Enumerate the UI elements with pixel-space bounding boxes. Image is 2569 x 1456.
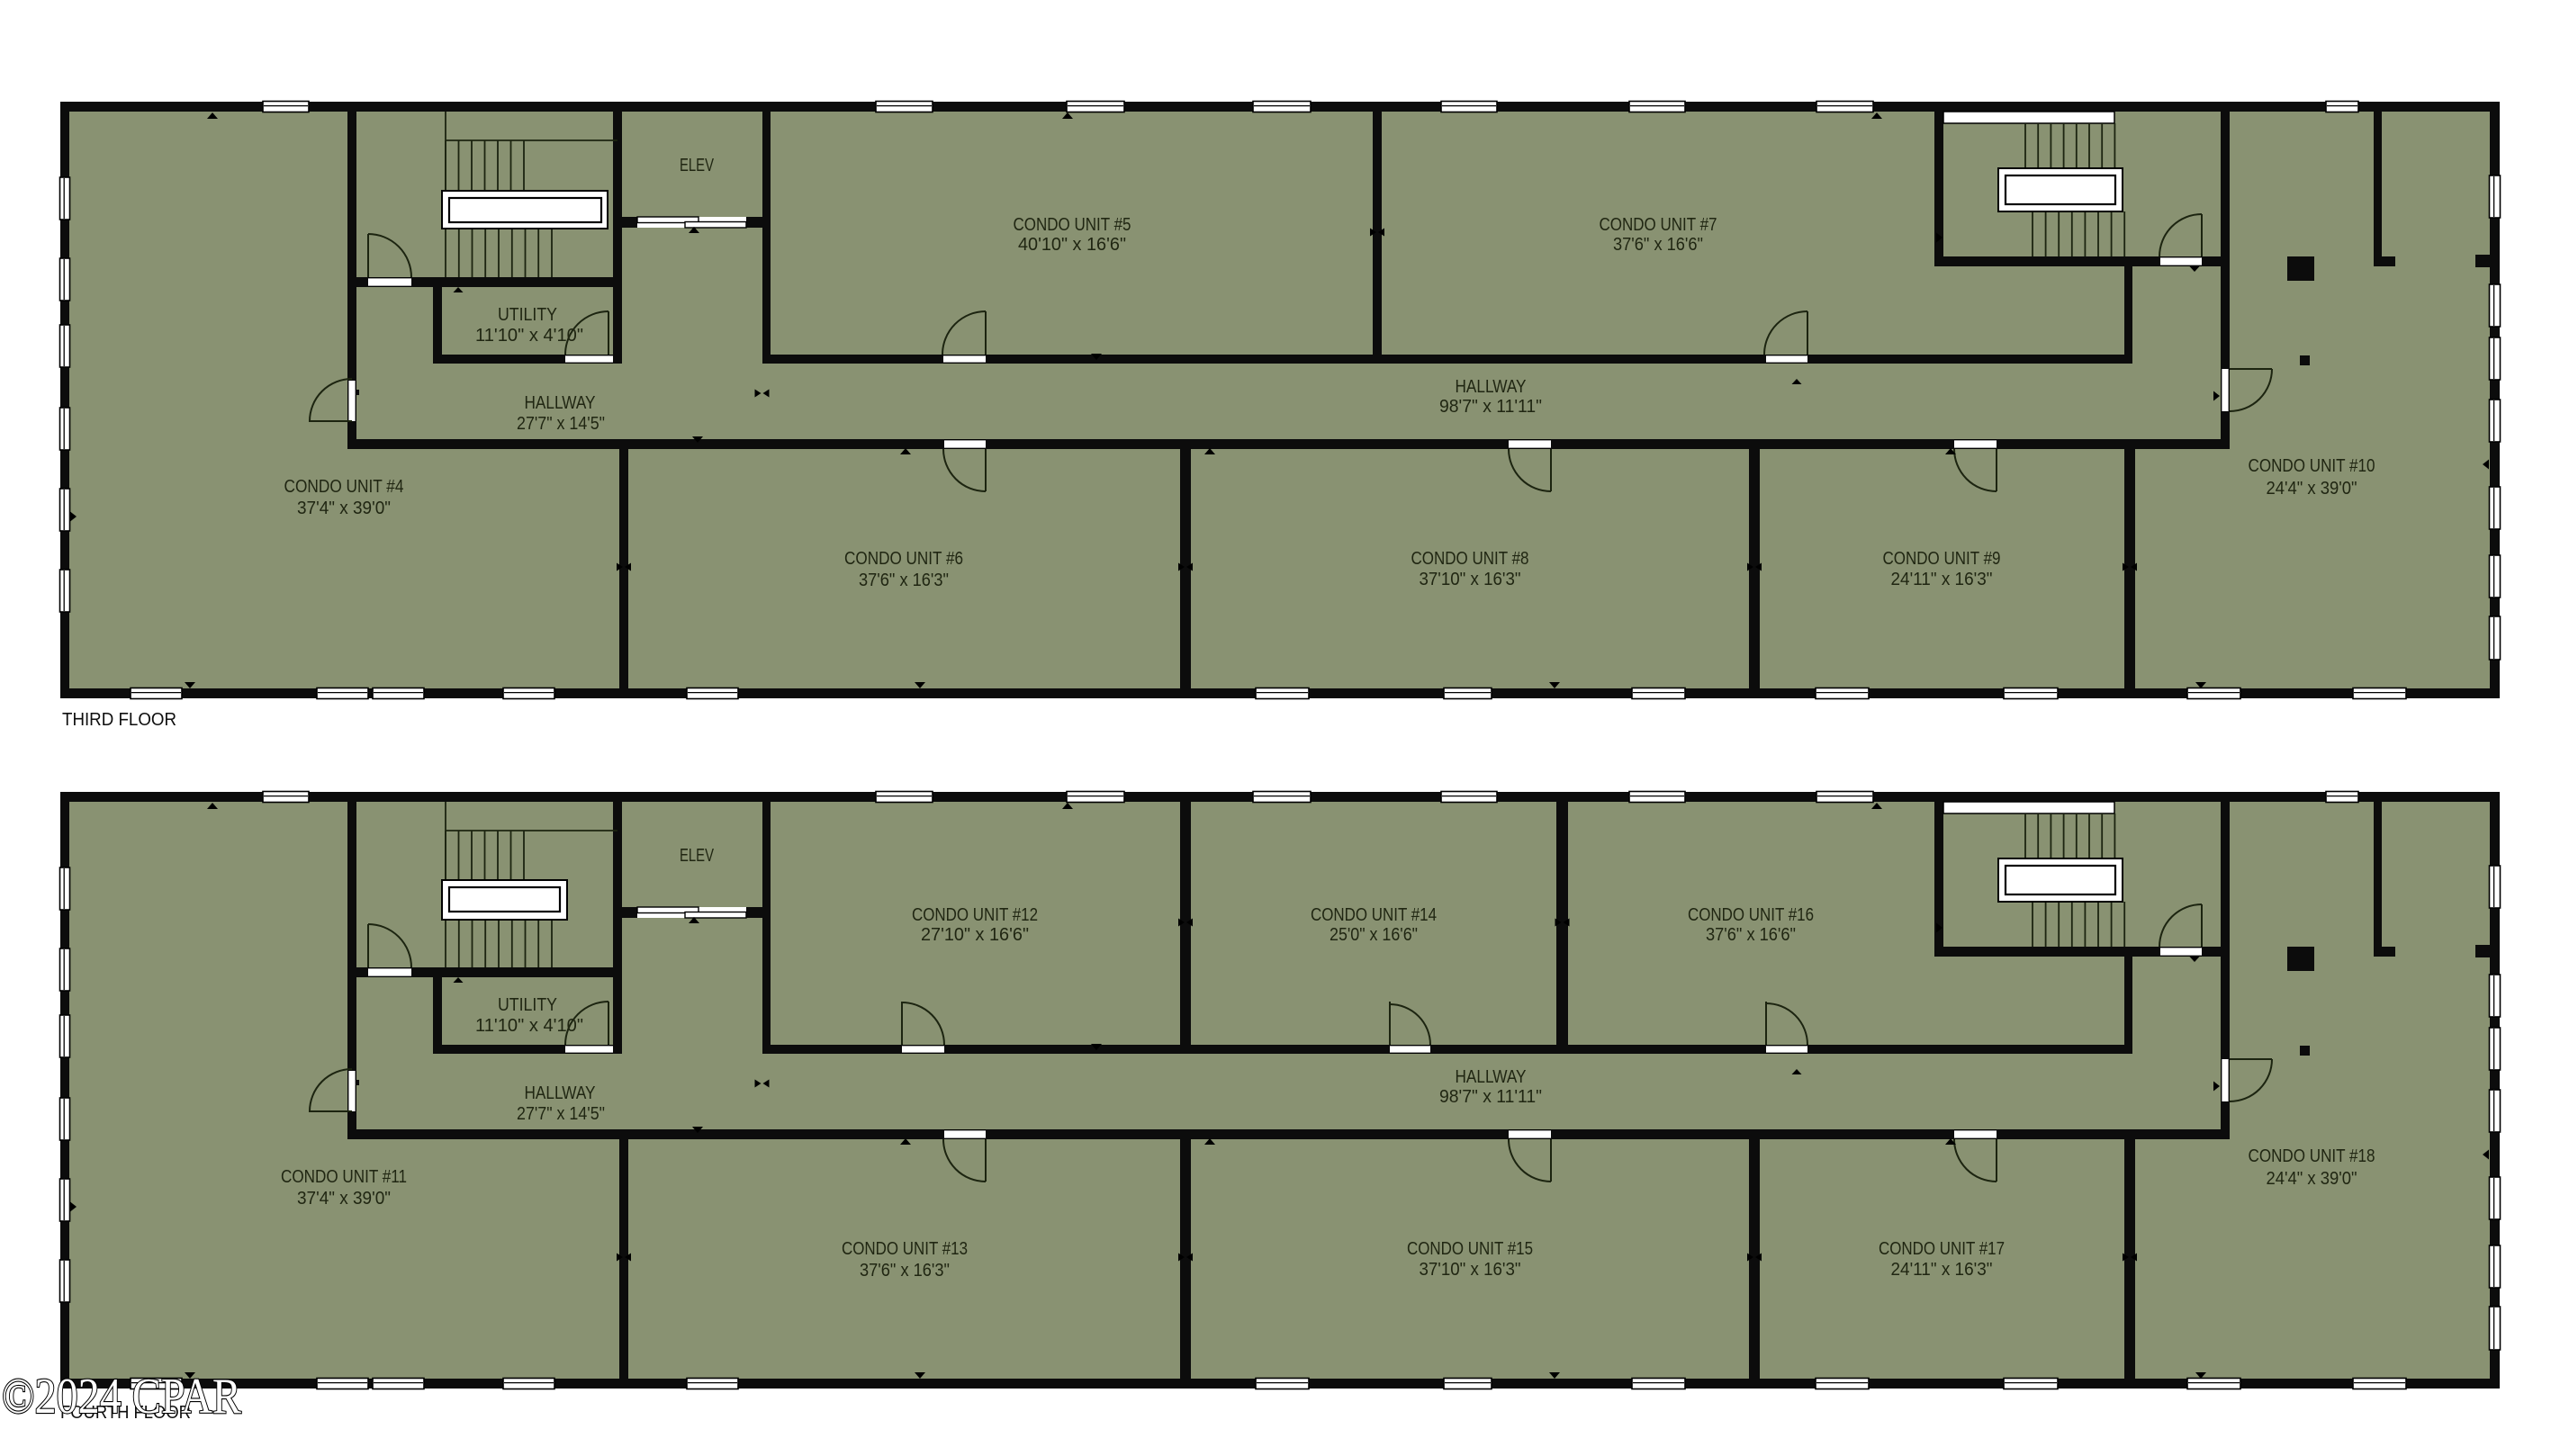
- svg-text:37'4" x 39'0": 37'4" x 39'0": [297, 499, 391, 518]
- svg-text:CONDO UNIT #11: CONDO UNIT #11: [281, 1167, 407, 1187]
- svg-text:98'7" x 11'11": 98'7" x 11'11": [1439, 1087, 1542, 1107]
- svg-text:37'6" x 16'3": 37'6" x 16'3": [859, 571, 949, 590]
- svg-text:ELEV: ELEV: [680, 846, 714, 866]
- svg-text:CONDO UNIT #8: CONDO UNIT #8: [1411, 549, 1529, 569]
- svg-text:25'0" x 16'6": 25'0" x 16'6": [1330, 925, 1418, 945]
- svg-text:CONDO UNIT #4: CONDO UNIT #4: [284, 477, 404, 497]
- svg-text:HALLWAY: HALLWAY: [525, 393, 596, 413]
- svg-text:CONDO UNIT #10: CONDO UNIT #10: [2249, 456, 2375, 476]
- svg-text:HALLWAY: HALLWAY: [525, 1083, 596, 1103]
- svg-text:37'6" x 16'6": 37'6" x 16'6": [1613, 235, 1703, 255]
- svg-text:37'6" x 16'6": 37'6" x 16'6": [1706, 925, 1796, 945]
- svg-text:11'10" x 4'10": 11'10" x 4'10": [475, 1016, 583, 1036]
- svg-text:HALLWAY: HALLWAY: [1456, 377, 1527, 397]
- svg-text:CONDO UNIT #16: CONDO UNIT #16: [1688, 905, 1814, 925]
- svg-text:CONDO UNIT #9: CONDO UNIT #9: [1883, 549, 2001, 569]
- svg-text:37'10" x 16'3": 37'10" x 16'3": [1420, 570, 1521, 589]
- svg-text:THIRD FLOOR: THIRD FLOOR: [62, 710, 176, 730]
- svg-text:CONDO UNIT #5: CONDO UNIT #5: [1014, 215, 1131, 235]
- svg-text:ELEV: ELEV: [680, 156, 714, 175]
- svg-text:37'4" x 39'0": 37'4" x 39'0": [297, 1189, 391, 1209]
- svg-text:24'4" x 39'0": 24'4" x 39'0": [2267, 1169, 2357, 1189]
- svg-text:24'4" x 39'0": 24'4" x 39'0": [2267, 479, 2357, 499]
- svg-text:CONDO UNIT #13: CONDO UNIT #13: [842, 1239, 968, 1259]
- svg-text:UTILITY: UTILITY: [498, 305, 557, 325]
- svg-text:37'10" x 16'3": 37'10" x 16'3": [1420, 1260, 1521, 1280]
- svg-text:11'10" x 4'10": 11'10" x 4'10": [475, 326, 583, 346]
- svg-text:©2024 CPAR: ©2024 CPAR: [2, 1369, 242, 1425]
- svg-text:27'10" x 16'6": 27'10" x 16'6": [921, 925, 1029, 945]
- svg-text:24'11" x 16'3": 24'11" x 16'3": [1891, 1260, 1993, 1280]
- svg-text:CONDO UNIT #7: CONDO UNIT #7: [1600, 215, 1717, 235]
- svg-text:CONDO UNIT #18: CONDO UNIT #18: [2249, 1146, 2375, 1166]
- svg-text:98'7" x 11'11": 98'7" x 11'11": [1439, 397, 1542, 417]
- svg-text:UTILITY: UTILITY: [498, 995, 557, 1015]
- svg-text:HALLWAY: HALLWAY: [1456, 1067, 1527, 1087]
- svg-text:37'6" x 16'3": 37'6" x 16'3": [860, 1261, 950, 1281]
- svg-text:27'7" x 14'5": 27'7" x 14'5": [517, 1104, 605, 1124]
- svg-text:CONDO UNIT #15: CONDO UNIT #15: [1407, 1239, 1533, 1259]
- svg-text:CONDO UNIT #12: CONDO UNIT #12: [912, 905, 1038, 925]
- svg-text:24'11" x 16'3": 24'11" x 16'3": [1891, 570, 1993, 589]
- svg-text:27'7" x 14'5": 27'7" x 14'5": [517, 414, 605, 434]
- svg-text:CONDO UNIT #17: CONDO UNIT #17: [1879, 1239, 2005, 1259]
- svg-text:CONDO UNIT #14: CONDO UNIT #14: [1311, 905, 1437, 925]
- svg-text:CONDO UNIT #6: CONDO UNIT #6: [844, 549, 963, 569]
- svg-text:40'10" x 16'6": 40'10" x 16'6": [1018, 235, 1126, 255]
